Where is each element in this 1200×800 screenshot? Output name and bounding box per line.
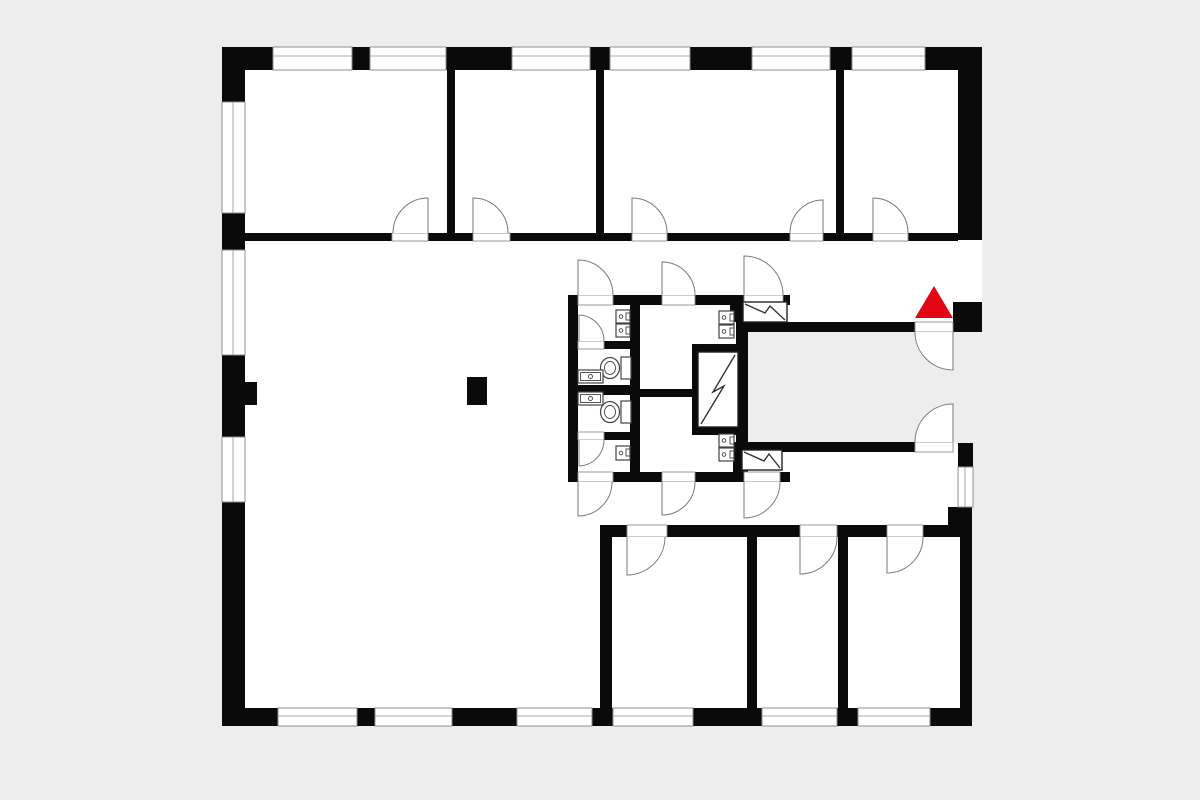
counter-sink-icon: [578, 392, 603, 405]
sink-icon: [616, 446, 630, 460]
sink-icon: [719, 325, 734, 338]
sink-icon: [616, 324, 630, 337]
sink-icon: [719, 448, 734, 461]
floor-plan: [0, 0, 1200, 800]
floor-plan-canvas: [0, 0, 1200, 800]
toilet-icon: [601, 401, 632, 423]
wall-pilaster: [245, 382, 257, 405]
freestanding-pillar: [467, 377, 487, 405]
toilet-icon: [601, 357, 632, 379]
corridor-wall: [245, 233, 958, 241]
counter-sink-icon: [578, 370, 603, 383]
sink-icon: [719, 311, 734, 324]
sink-icon: [616, 310, 630, 323]
sink-icon: [719, 434, 734, 447]
